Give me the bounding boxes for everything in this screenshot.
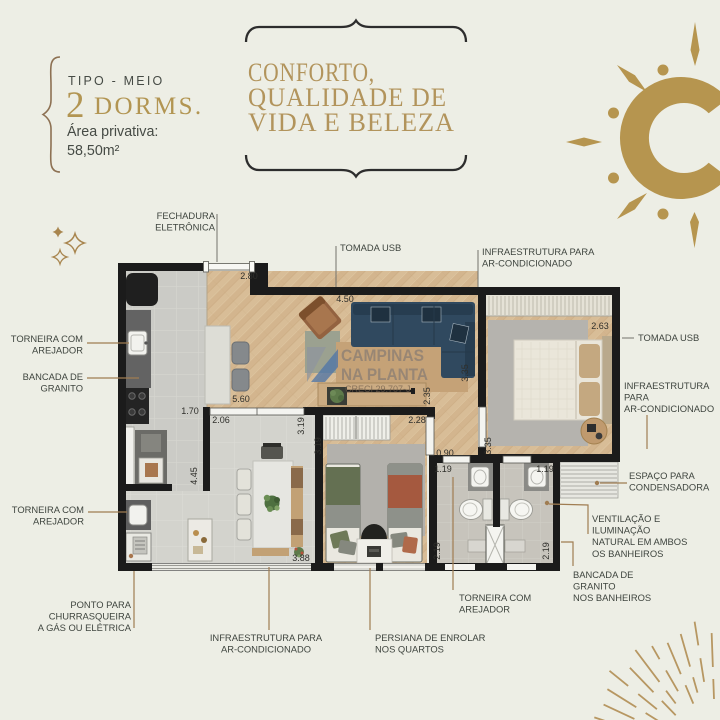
svg-text:AR-CONDICIONADO: AR-CONDICIONADO [624,403,714,414]
svg-text:2: 2 [66,85,85,126]
svg-text:OS BANHEIROS: OS BANHEIROS [592,548,663,559]
svg-text:AREJADOR: AREJADOR [33,516,84,527]
svg-text:FECHADURA: FECHADURA [157,210,216,221]
svg-text:3.35: 3.35 [483,437,493,455]
svg-text:INFRAESTRUTURA PARA: INFRAESTRUTURA PARA [210,632,323,643]
svg-text:CHURRASQUEIRA: CHURRASQUEIRA [49,611,132,622]
svg-text:AREJADOR: AREJADOR [459,604,510,615]
svg-text:2.35: 2.35 [422,387,432,405]
svg-text:AR-CONDICIONADO: AR-CONDICIONADO [482,258,572,269]
svg-text:5.60: 5.60 [232,394,250,404]
svg-text:1.19: 1.19 [536,464,554,474]
svg-text:NA PLANTA: NA PLANTA [341,365,428,384]
svg-text:ILUMINAÇÃO: ILUMINAÇÃO [592,525,650,536]
svg-text:CONDENSADORA: CONDENSADORA [629,482,710,493]
svg-text:DORMS.: DORMS. [94,93,204,120]
svg-text:3.19: 3.19 [296,417,306,435]
svg-text:AREJADOR: AREJADOR [32,345,83,356]
svg-text:3.19: 3.19 [313,437,323,455]
svg-text:ELETRÔNICA: ELETRÔNICA [155,222,216,233]
svg-text:3.35: 3.35 [460,364,470,382]
svg-text:2.80: 2.80 [240,271,258,281]
svg-text:TOMADA USB: TOMADA USB [340,242,401,253]
svg-text:2.06: 2.06 [212,415,230,425]
svg-text:2.19: 2.19 [541,542,551,560]
svg-text:PONTO PARA: PONTO PARA [70,599,131,610]
svg-text:BANCADA DE: BANCADA DE [573,569,633,580]
svg-text:NOS BANHEIROS: NOS BANHEIROS [573,592,651,603]
svg-text:VENTILAÇÃO E: VENTILAÇÃO E [592,513,660,524]
svg-text:1.19: 1.19 [434,464,452,474]
svg-text:PARA: PARA [624,392,650,403]
svg-text:4.50: 4.50 [336,294,354,304]
svg-text:0.90: 0.90 [436,448,454,458]
svg-text:2.19: 2.19 [432,542,442,560]
svg-text:CAMPINAS: CAMPINAS [341,346,424,365]
svg-text:58,50m²: 58,50m² [67,143,120,159]
svg-text:2.28: 2.28 [408,415,426,425]
svg-text:3.88: 3.88 [292,553,310,563]
svg-text:4.45: 4.45 [189,467,199,485]
svg-text:AR-CONDICIONADO: AR-CONDICIONADO [221,644,311,655]
svg-text:A GÁS OU ELÉTRICA: A GÁS OU ELÉTRICA [38,622,132,633]
svg-text:ESPAÇO PARA: ESPAÇO PARA [629,470,696,481]
svg-text:GRANITO: GRANITO [40,383,83,394]
svg-text:1.70: 1.70 [181,406,199,416]
svg-text:TORNEIRA COM: TORNEIRA COM [11,333,83,344]
svg-text:Área privativa:: Área privativa: [67,123,158,140]
svg-text:CRECI 29.707-J: CRECI 29.707-J [345,384,411,394]
svg-text:TORNEIRA COM: TORNEIRA COM [459,592,531,603]
svg-text:VIDA E BELEZA: VIDA E BELEZA [248,107,455,137]
svg-text:NATURAL EM AMBOS: NATURAL EM AMBOS [592,536,687,547]
svg-text:INFRAESTRUTURA: INFRAESTRUTURA [624,380,710,391]
svg-text:INFRAESTRUTURA PARA: INFRAESTRUTURA PARA [482,246,595,257]
svg-text:GRANITO: GRANITO [573,581,616,592]
svg-text:TOMADA USB: TOMADA USB [638,332,699,343]
svg-text:2.63: 2.63 [591,321,609,331]
svg-text:NOS QUARTOS: NOS QUARTOS [375,644,444,655]
svg-text:BANCADA DE: BANCADA DE [23,371,83,382]
svg-text:PERSIANA DE ENROLAR: PERSIANA DE ENROLAR [375,632,486,643]
svg-text:TORNEIRA COM: TORNEIRA COM [12,504,84,515]
